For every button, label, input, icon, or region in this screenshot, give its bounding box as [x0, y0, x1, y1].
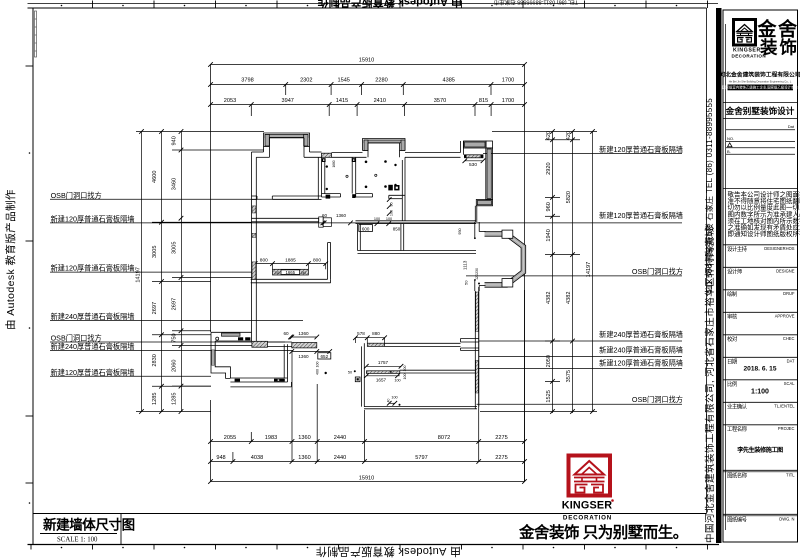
- svg-text:2050: 2050: [546, 355, 552, 367]
- svg-text:100: 100: [315, 362, 319, 368]
- svg-text:新建240厚普通石膏板隔墙: 新建240厚普通石膏板隔墙: [599, 346, 683, 355]
- svg-text:800: 800: [260, 257, 268, 263]
- svg-text:1940: 1940: [546, 229, 552, 241]
- svg-text:960: 960: [546, 202, 552, 211]
- svg-text:50: 50: [463, 280, 468, 285]
- svg-text:B.: B.: [727, 149, 731, 154]
- svg-text:100: 100: [391, 396, 397, 400]
- svg-text:TL.IENTEL: TL.IENTEL: [774, 404, 795, 409]
- svg-text:SCAL: SCAL: [784, 381, 795, 386]
- svg-text:240: 240: [301, 271, 307, 275]
- svg-text:1680: 1680: [332, 160, 336, 167]
- svg-text:652: 652: [320, 354, 328, 359]
- svg-text:DECORATION: DECORATION: [732, 54, 767, 59]
- svg-text:审核: 审核: [727, 313, 738, 321]
- svg-text:OSB门洞口找方: OSB门洞口找方: [632, 267, 683, 276]
- svg-text:1360: 1360: [298, 331, 309, 336]
- svg-text:Dat: Dat: [788, 124, 795, 129]
- svg-text:14197: 14197: [586, 262, 592, 278]
- svg-text:1113: 1113: [462, 260, 467, 270]
- svg-text:2018. 6. 15: 2018. 6. 15: [744, 366, 777, 373]
- svg-text:新建240厚普通石膏板隔墙: 新建240厚普通石膏板隔墙: [51, 312, 135, 321]
- svg-text:NO.: NO.: [727, 136, 734, 141]
- svg-text:2302: 2302: [300, 78, 312, 84]
- svg-text:DRUF: DRUF: [783, 291, 795, 296]
- svg-text:800: 800: [313, 257, 321, 263]
- svg-text:1665: 1665: [286, 270, 296, 275]
- svg-text:4382: 4382: [566, 292, 572, 304]
- svg-text:校对: 校对: [727, 335, 738, 343]
- svg-text:图纸编号: 图纸编号: [727, 516, 748, 524]
- svg-text:设计师: 设计师: [727, 268, 743, 276]
- svg-text:1545: 1545: [337, 78, 349, 84]
- svg-text:100: 100: [374, 217, 380, 221]
- svg-text:940: 940: [171, 136, 177, 145]
- svg-text:815: 815: [479, 98, 488, 104]
- svg-text:新建120厚普通石膏板隔墙: 新建120厚普通石膏板隔墙: [599, 145, 683, 154]
- svg-text:比例: 比例: [727, 380, 737, 388]
- svg-text:100: 100: [403, 374, 407, 380]
- svg-text:新建120厚普通石膏板隔墙: 新建120厚普通石膏板隔墙: [599, 359, 683, 368]
- svg-text:100: 100: [394, 378, 400, 382]
- svg-text:1360: 1360: [298, 354, 309, 359]
- svg-text:图纸名称: 图纸名称: [727, 472, 748, 480]
- svg-text:3005: 3005: [152, 246, 158, 258]
- svg-text:1757: 1757: [378, 360, 389, 365]
- svg-text:120: 120: [475, 274, 479, 280]
- svg-text:420: 420: [546, 131, 552, 140]
- svg-text:1360: 1360: [336, 213, 347, 218]
- svg-text:SCALE 1: 100: SCALE 1: 100: [57, 537, 98, 544]
- svg-text:1700: 1700: [502, 78, 514, 84]
- svg-text:948: 948: [216, 455, 225, 461]
- svg-text:新建120厚普通石膏板隔墙: 新建120厚普通石膏板隔墙: [51, 368, 135, 377]
- svg-text:设计主持: 设计主持: [727, 245, 748, 253]
- svg-text:业主确认: 业主确认: [727, 403, 748, 411]
- svg-text:50: 50: [348, 370, 352, 374]
- svg-text:DESIGNERHOS: DESIGNERHOS: [764, 246, 795, 251]
- svg-text:工程名称: 工程名称: [727, 425, 748, 433]
- svg-text:2280: 2280: [375, 78, 387, 84]
- svg-text:5797: 5797: [415, 455, 427, 461]
- svg-text:5820: 5820: [566, 191, 572, 203]
- svg-text:60: 60: [322, 213, 328, 218]
- svg-text:金舍装饰 只为别墅而生。: 金舍装饰 只为别墅而生。: [518, 523, 688, 542]
- svg-text:2830: 2830: [152, 354, 158, 366]
- svg-text:3005: 3005: [171, 242, 177, 254]
- svg-text:4600: 4600: [152, 171, 158, 183]
- svg-text:OSB门洞口找方: OSB门洞口找方: [51, 191, 102, 200]
- svg-text:2440: 2440: [334, 455, 346, 461]
- svg-text:3570: 3570: [434, 98, 446, 104]
- svg-text:2055: 2055: [224, 435, 236, 441]
- svg-text:2275: 2275: [495, 455, 507, 461]
- svg-text:3947: 3947: [281, 98, 293, 104]
- svg-text:新建240厚普通石膏板隔墙: 新建240厚普通石膏板隔墙: [599, 330, 683, 339]
- svg-text:100: 100: [386, 217, 392, 221]
- svg-text:1700: 1700: [502, 98, 514, 104]
- svg-text:新建墙体尺寸图: 新建墙体尺寸图: [43, 517, 135, 533]
- svg-text:60: 60: [283, 331, 289, 336]
- svg-text:4382: 4382: [546, 292, 552, 304]
- svg-text:15910: 15910: [359, 58, 375, 64]
- svg-text:He Bei Jin She Building Decora: He Bei Jin She Building Decoration Engin…: [729, 80, 792, 84]
- svg-text:600: 600: [362, 226, 370, 231]
- svg-text:420: 420: [566, 131, 572, 140]
- svg-text:1657: 1657: [376, 377, 387, 382]
- svg-text:新建120厚普通石膏板隔墙: 新建120厚普通石膏板隔墙: [51, 264, 135, 273]
- svg-text:由 Autodesk 教育版产品制作: 由 Autodesk 教育版产品制作: [318, 0, 462, 10]
- svg-text:14197: 14197: [136, 267, 142, 283]
- svg-text:578: 578: [357, 331, 365, 336]
- svg-text:即通知设计师图纸版权所有: 即通知设计师图纸版权所有: [728, 229, 800, 238]
- svg-text:2410: 2410: [374, 98, 386, 104]
- svg-text:1885: 1885: [285, 257, 296, 263]
- svg-text:240: 240: [274, 271, 280, 275]
- svg-text:230: 230: [475, 268, 479, 274]
- svg-text:绘制: 绘制: [727, 290, 737, 298]
- svg-text:1:100: 1:100: [751, 389, 769, 396]
- svg-text:100: 100: [403, 366, 407, 372]
- svg-text:日期: 日期: [727, 359, 737, 366]
- svg-text:40: 40: [386, 399, 390, 403]
- svg-text:3460: 3460: [171, 178, 177, 190]
- svg-text:400: 400: [315, 369, 319, 375]
- svg-text:2697: 2697: [171, 298, 177, 310]
- svg-text:由 Autodesk 教育版产品制作: 由 Autodesk 教育版产品制作: [316, 545, 461, 559]
- svg-text:3575: 3575: [566, 370, 572, 382]
- svg-text:国家级室内装饰乙级施工企业,国家级乙级设计单位: 国家级室内装饰乙级施工企业,国家级乙级设计单位: [722, 84, 798, 89]
- svg-text:PROJEC: PROJEC: [778, 426, 795, 431]
- svg-text:DECORATION: DECORATION: [563, 515, 612, 522]
- svg-text:880: 880: [372, 331, 380, 336]
- svg-text:2697: 2697: [152, 302, 158, 314]
- svg-text:1360: 1360: [298, 455, 310, 461]
- svg-text:由 Autodesk 教育版产品制作: 由 Autodesk 教育版产品制作: [4, 189, 17, 330]
- svg-text:8072: 8072: [438, 435, 450, 441]
- svg-text:李先生装修施工图: 李先生装修施工图: [736, 446, 783, 454]
- svg-text:KINGSER: KINGSER: [562, 500, 613, 512]
- svg-text:CHEC: CHEC: [783, 336, 795, 341]
- svg-text:1285: 1285: [152, 393, 158, 405]
- svg-text:TITL: TITL: [786, 473, 795, 478]
- svg-text:新建240厚普通石膏板隔墙: 新建240厚普通石膏板隔墙: [51, 342, 135, 351]
- svg-text:1983: 1983: [265, 435, 277, 441]
- svg-text:4385: 4385: [442, 78, 454, 84]
- svg-text:1525: 1525: [546, 390, 552, 402]
- svg-text:新建120厚普通石膏板隔墙: 新建120厚普通石膏板隔墙: [51, 214, 135, 223]
- svg-text:2053: 2053: [224, 98, 236, 104]
- svg-text:河北金舍建筑装饰工程有限公司: 河北金舍建筑装饰工程有限公司: [719, 71, 800, 79]
- svg-text:950: 950: [458, 228, 462, 234]
- svg-text:DAT: DAT: [787, 359, 795, 364]
- svg-text:1285: 1285: [171, 393, 177, 405]
- svg-text:DESIGNE: DESIGNE: [776, 269, 795, 274]
- svg-text:411 506 陶瓷城6楼 石家庄 TEL (86): 411 506 陶瓷城6楼 石家庄 TEL (86) 0311-88995555: [704, 98, 714, 294]
- svg-text:APPROVE: APPROVE: [775, 314, 795, 319]
- svg-text:2060: 2060: [171, 360, 177, 372]
- svg-text:2440: 2440: [334, 435, 346, 441]
- svg-text:新建120厚普通石膏板隔墙: 新建120厚普通石膏板隔墙: [599, 211, 683, 220]
- svg-text:15910: 15910: [359, 475, 375, 481]
- svg-text:1415: 1415: [336, 98, 348, 104]
- svg-text:850: 850: [393, 226, 401, 231]
- svg-text:DWG. N: DWG. N: [779, 517, 794, 522]
- svg-text:1360: 1360: [298, 435, 310, 441]
- svg-text:3798: 3798: [241, 78, 253, 84]
- svg-text:4038: 4038: [251, 455, 263, 461]
- svg-text:2920: 2920: [546, 162, 552, 174]
- svg-text:530: 530: [469, 162, 477, 168]
- svg-text:金舍别墅装饰设计: 金舍别墅装饰设计: [725, 105, 795, 116]
- svg-text:OSB门洞口找方: OSB门洞口找方: [632, 395, 683, 404]
- svg-text:2275: 2275: [495, 435, 507, 441]
